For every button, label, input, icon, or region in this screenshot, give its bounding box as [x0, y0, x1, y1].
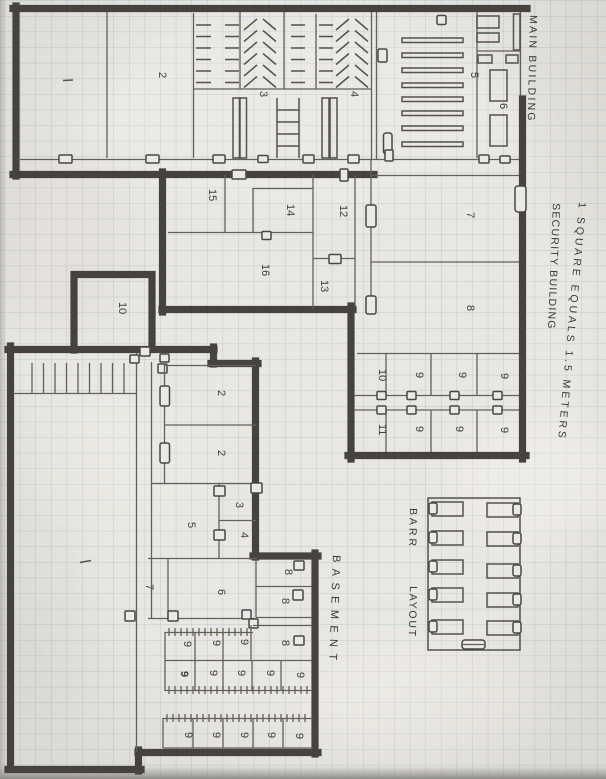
svg-text:9: 9	[293, 733, 305, 739]
svg-text:11: 11	[376, 424, 388, 435]
svg-text:8: 8	[282, 569, 294, 575]
svg-text:BARR: BARR	[406, 508, 419, 547]
svg-text:8: 8	[279, 598, 291, 604]
svg-text:14: 14	[284, 204, 296, 216]
svg-text:MAIN BUILDING: MAIN BUILDING	[525, 15, 539, 121]
svg-text:9: 9	[413, 426, 425, 432]
svg-text:9: 9	[178, 671, 190, 677]
svg-text:4: 4	[238, 532, 250, 538]
svg-text:12: 12	[337, 205, 349, 217]
svg-text:9: 9	[238, 639, 250, 645]
svg-text:9: 9	[264, 670, 276, 676]
svg-text:9: 9	[413, 372, 425, 378]
svg-text:9: 9	[453, 426, 465, 432]
svg-text:6: 6	[497, 103, 509, 109]
svg-text:15: 15	[206, 189, 218, 201]
svg-text:9: 9	[210, 732, 222, 738]
svg-text:9: 9	[498, 373, 510, 379]
svg-text:9: 9	[498, 427, 510, 433]
svg-text:4: 4	[348, 91, 360, 97]
svg-text:LAYOUT: LAYOUT	[406, 586, 419, 637]
svg-text:8: 8	[279, 640, 291, 646]
svg-text:2: 2	[215, 390, 227, 396]
svg-text:16: 16	[259, 264, 271, 276]
svg-text:9: 9	[181, 641, 193, 647]
svg-text:10: 10	[116, 302, 128, 314]
svg-text:2: 2	[215, 450, 227, 456]
svg-text:7: 7	[464, 212, 476, 218]
svg-text:2: 2	[156, 72, 168, 78]
svg-text:9: 9	[207, 670, 219, 676]
svg-text:9: 9	[210, 640, 222, 646]
svg-text:9: 9	[238, 732, 250, 738]
svg-text:3: 3	[257, 91, 269, 97]
svg-text:9: 9	[456, 372, 468, 378]
svg-text:9: 9	[294, 672, 306, 678]
svg-text:10: 10	[376, 369, 388, 381]
svg-text:5: 5	[468, 72, 480, 78]
svg-text:7: 7	[143, 584, 155, 590]
svg-text:13: 13	[318, 280, 330, 292]
svg-text:6: 6	[215, 589, 227, 595]
svg-text:9: 9	[235, 670, 247, 676]
svg-text:5: 5	[185, 522, 197, 528]
svg-text:8: 8	[464, 305, 476, 311]
svg-text:3: 3	[233, 502, 245, 508]
svg-text:9: 9	[265, 732, 277, 738]
svg-text:9: 9	[182, 732, 194, 738]
